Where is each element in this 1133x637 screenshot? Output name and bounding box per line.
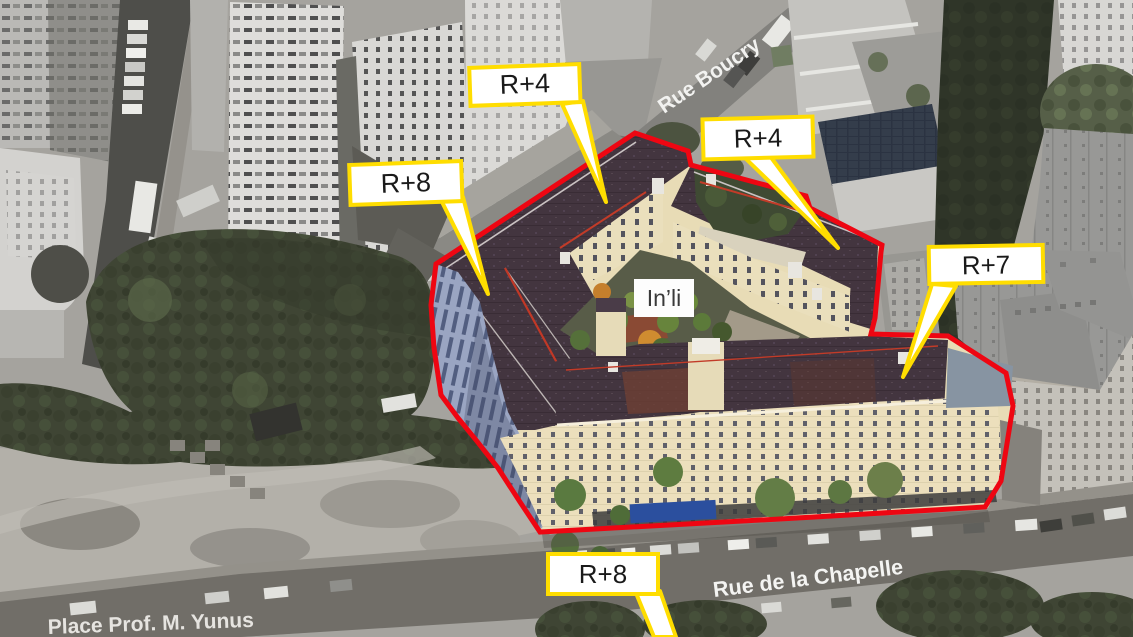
- svg-text:R+4: R+4: [733, 122, 782, 153]
- svg-text:R+8: R+8: [380, 167, 431, 199]
- svg-text:R+7: R+7: [962, 250, 1011, 281]
- svg-text:R+8: R+8: [579, 559, 627, 589]
- svg-text:In’li: In’li: [647, 285, 682, 311]
- svg-text:R+4: R+4: [499, 68, 550, 100]
